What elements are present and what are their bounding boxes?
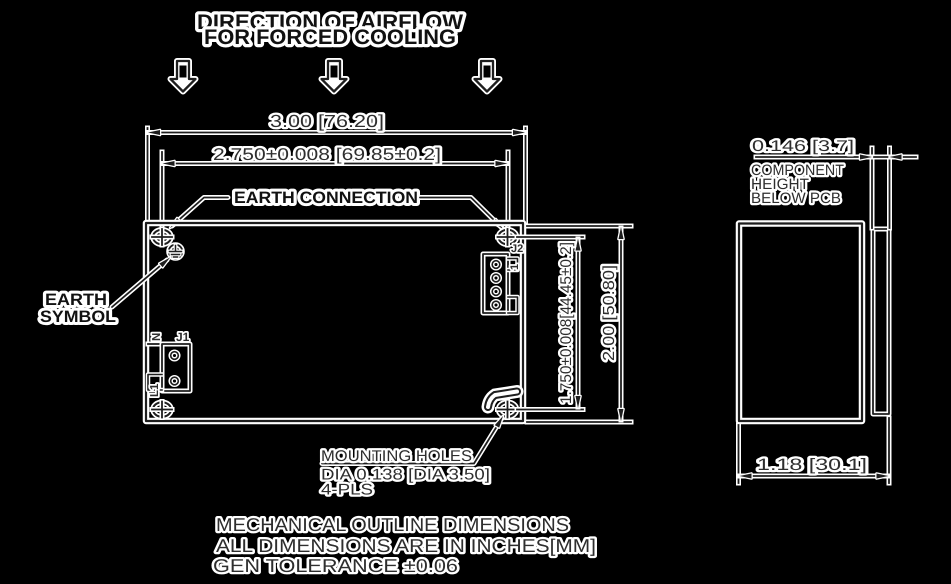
svg-text:3.00 [76.20]: 3.00 [76.20] [270, 111, 384, 131]
svg-text:1.18 [30.1]: 1.18 [30.1] [757, 456, 867, 474]
svg-text:J2: J2 [511, 243, 523, 255]
svg-text:FOR FORCED COOLING: FOR FORCED COOLING [204, 26, 456, 49]
svg-text:SYMBOL: SYMBOL [40, 308, 116, 326]
svg-text:1: 1 [509, 264, 521, 270]
svg-text:2.750±0.008 [69.85±0.2]: 2.750±0.008 [69.85±0.2] [213, 145, 441, 164]
svg-text:1.750±0.008[44.45±0.2]: 1.750±0.008[44.45±0.2] [558, 242, 575, 404]
svg-text:4-PLS: 4-PLS [321, 482, 373, 499]
svg-text:MECHANICAL OUTLINE DIMENSIONS: MECHANICAL OUTLINE DIMENSIONS [216, 514, 569, 535]
svg-text:J1: J1 [176, 330, 190, 344]
svg-text:GEN TOLERANCE ±0.06: GEN TOLERANCE ±0.06 [213, 555, 458, 576]
svg-text:BELOW PCB: BELOW PCB [751, 190, 841, 207]
svg-text:ALL DIMENSIONS ARE IN INCHES[M: ALL DIMENSIONS ARE IN INCHES[MM] [216, 535, 596, 556]
svg-text:MOUNTING HOLES: MOUNTING HOLES [321, 448, 472, 465]
svg-text:2.00 [50.80]: 2.00 [50.80] [601, 265, 618, 361]
svg-text:0.146 [3.7]: 0.146 [3.7] [752, 138, 854, 155]
svg-text:L1: L1 [149, 383, 161, 397]
svg-text:EARTH: EARTH [45, 291, 107, 309]
svg-text:N: N [151, 333, 163, 341]
svg-text:EARTH CONNECTION: EARTH CONNECTION [234, 189, 418, 207]
